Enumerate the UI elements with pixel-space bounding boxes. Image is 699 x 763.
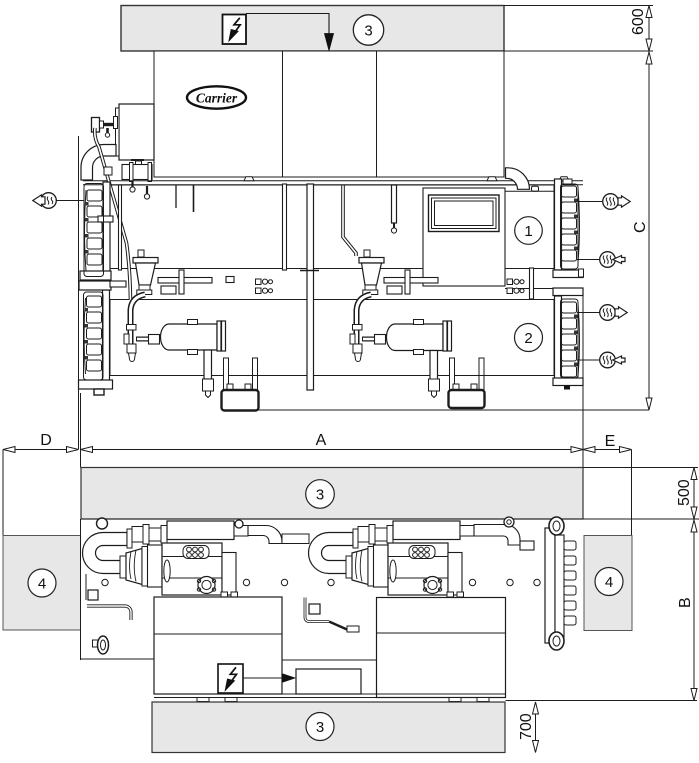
svg-text:2: 2	[524, 330, 532, 347]
svg-text:B: B	[677, 597, 694, 608]
svg-text:Carrier: Carrier	[196, 91, 238, 106]
svg-text:500: 500	[676, 479, 693, 506]
svg-text:C: C	[632, 221, 649, 233]
svg-text:3: 3	[316, 719, 324, 736]
svg-text:A: A	[316, 432, 327, 449]
svg-text:4: 4	[605, 574, 613, 591]
svg-text:3: 3	[364, 23, 372, 40]
svg-text:D: D	[40, 432, 52, 449]
svg-text:1: 1	[524, 223, 532, 240]
svg-text:700: 700	[518, 713, 535, 740]
svg-text:E: E	[605, 433, 616, 450]
svg-text:4: 4	[38, 576, 46, 593]
svg-text:3: 3	[316, 487, 324, 504]
svg-text:600: 600	[630, 8, 647, 35]
